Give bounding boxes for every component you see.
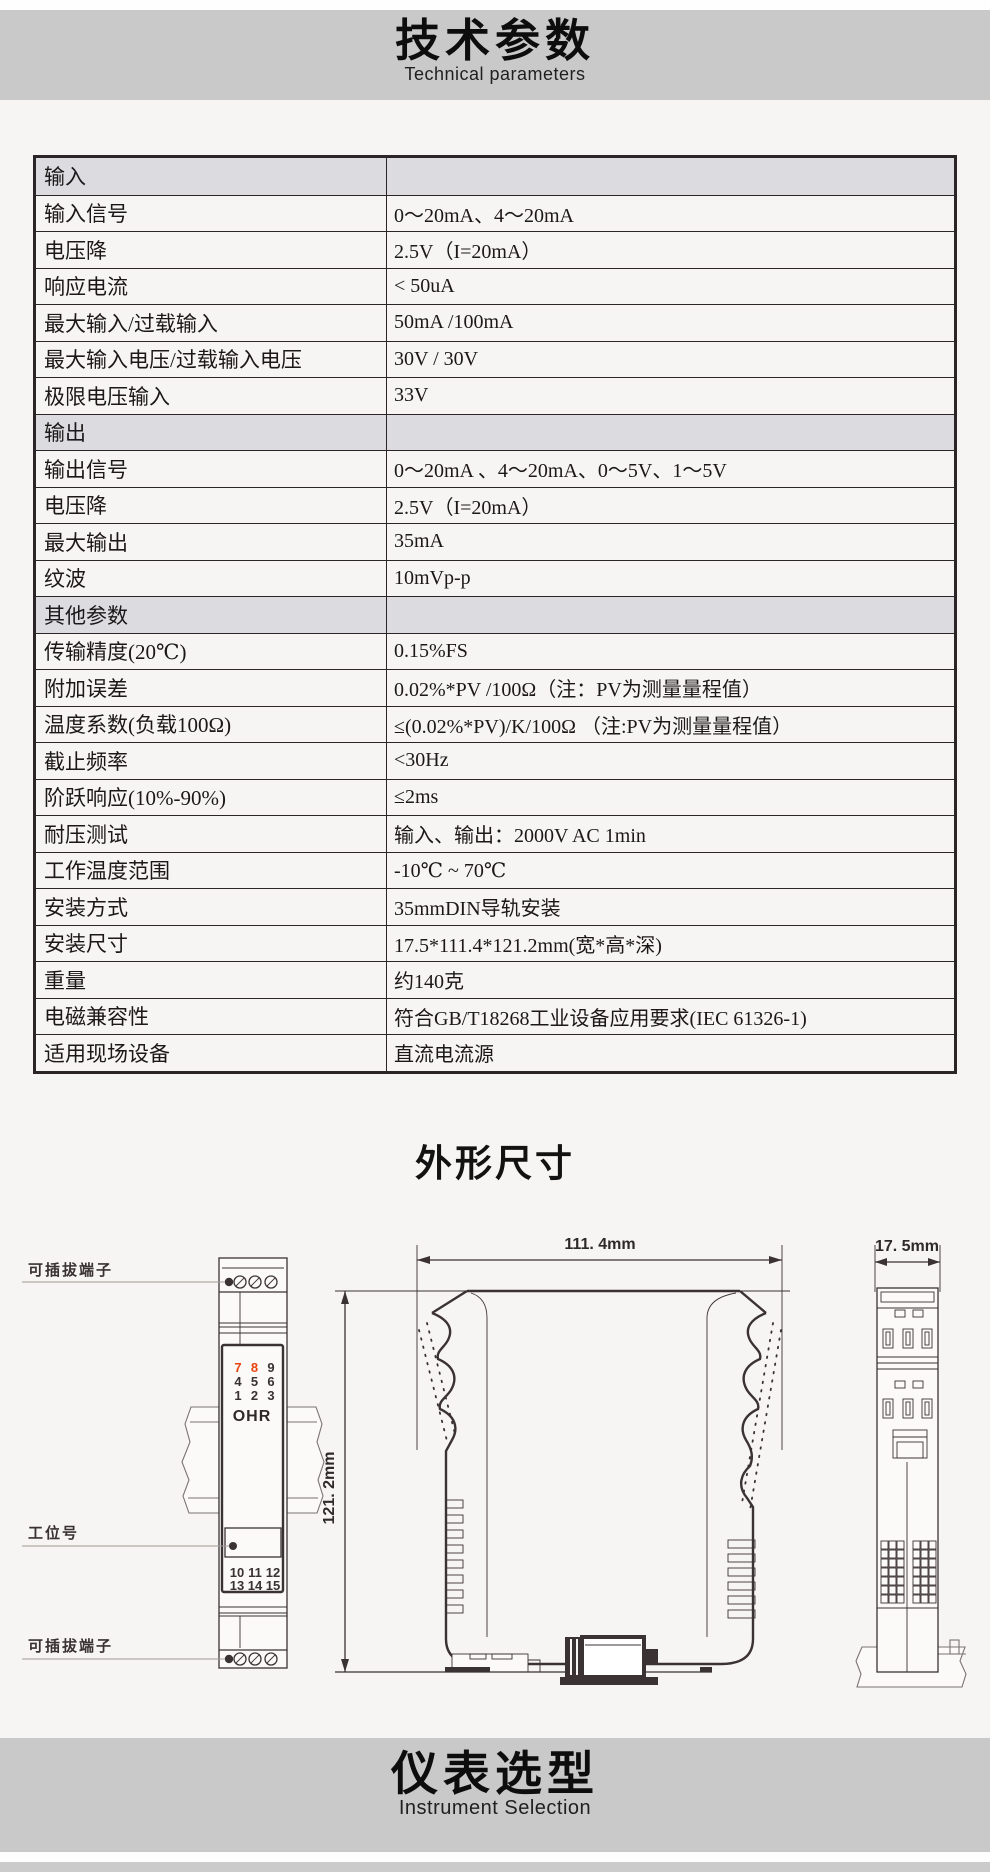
- spec-label: 其他参数: [36, 597, 387, 633]
- brand-logo: OHR: [233, 1408, 272, 1425]
- leader-dot-top: [225, 1277, 233, 1285]
- spec-value: [387, 597, 954, 633]
- spec-label: 传输精度(20℃): [36, 634, 387, 670]
- spec-value: 2.5V（I=20mA）: [387, 488, 954, 524]
- label-pluggable-terminal-bottom: 可插拔端子: [28, 1637, 113, 1655]
- table-row: 纹波 10mVp-p: [36, 560, 954, 597]
- selection-subtitle: Instrument Selection: [0, 1797, 990, 1820]
- table-row: 工作温度范围 -10℃ ~ 70℃: [36, 852, 954, 889]
- vent-slot: [446, 1605, 463, 1613]
- table-row: 传输精度(20℃) 0.15%FS: [36, 633, 954, 670]
- table-row: 最大输出 35mA: [36, 523, 954, 560]
- table-row: 重量 约140克: [36, 961, 954, 998]
- vent-slot: [728, 1596, 755, 1604]
- vent-slot: [728, 1582, 755, 1590]
- terminal-number: 2: [251, 1388, 258, 1403]
- spec-label: 附加误差: [36, 670, 387, 706]
- spec-value: 0～20mA 、4～20mA、0～5V、1～5V: [387, 451, 954, 487]
- label-station-number: 工位号: [28, 1524, 79, 1542]
- spec-value: < 50uA: [387, 269, 954, 305]
- table-row: 极限电压输入 33V: [36, 377, 954, 414]
- vent-slot: [728, 1568, 755, 1576]
- spec-label: 安装方式: [36, 889, 387, 925]
- table-row: 输出信号 0～20mA 、4～20mA、0～5V、1～5V: [36, 450, 954, 487]
- narrow-body: [877, 1288, 938, 1672]
- table-row: 响应电流 < 50uA: [36, 268, 954, 305]
- spec-label: 电压降: [36, 232, 387, 268]
- table-row: 输入: [36, 158, 954, 195]
- din-latch: [560, 1637, 658, 1685]
- spec-value: 17.5*111.4*121.2mm(宽*高*深): [387, 926, 954, 962]
- spec-label: 电压降: [36, 488, 387, 524]
- spec-label: 输出信号: [36, 451, 387, 487]
- spec-value: 50mA /100mA: [387, 305, 954, 341]
- table-row: 输出: [36, 414, 954, 451]
- outline-drawings: 789456123 OHR 101112131415 可插拔端子 工位号 可插拔…: [0, 1230, 990, 1735]
- spec-value: 约140克: [387, 962, 954, 998]
- spec-value: 30V / 30V: [387, 342, 954, 378]
- table-row: 适用现场设备 直流电流源: [36, 1034, 954, 1071]
- dim-width-label: 111. 4mm: [564, 1236, 635, 1253]
- table-row: 输入信号 0～20mA、4～20mA: [36, 195, 954, 232]
- table-row: 电压降 2.5V（I=20mA）: [36, 231, 954, 268]
- vent-slot: [446, 1530, 463, 1538]
- spec-value: [387, 415, 954, 451]
- terminal-number: 3: [267, 1388, 274, 1403]
- vent-slot: [446, 1575, 463, 1583]
- spec-label: 极限电压输入: [36, 378, 387, 414]
- spec-label: 纹波: [36, 561, 387, 597]
- spec-label: 最大输出: [36, 524, 387, 560]
- terminal-number: 9: [267, 1360, 274, 1375]
- spec-label: 温度系数(负载100Ω): [36, 707, 387, 743]
- terminal-number: 8: [251, 1360, 258, 1375]
- side-view: 111. 4mm 121. 2mm: [321, 1236, 790, 1685]
- terminal-number: 13: [230, 1578, 244, 1593]
- spec-label: 电磁兼容性: [36, 999, 387, 1035]
- selection-title: 仪表选型: [0, 1748, 990, 1800]
- table-row: 截止频率 <30Hz: [36, 742, 954, 779]
- spec-value: 2.5V（I=20mA）: [387, 232, 954, 268]
- table-row: 电压降 2.5V（I=20mA）: [36, 487, 954, 524]
- spec-table: 输入 输入信号 0～20mA、4～20mA 电压降 2.5V（I=20mA） 响…: [33, 155, 957, 1074]
- spec-value: -10℃ ~ 70℃: [387, 853, 954, 889]
- spec-label: 输入信号: [36, 196, 387, 232]
- spec-value: 35mA: [387, 524, 954, 560]
- spec-value: 33V: [387, 378, 954, 414]
- spec-label: 最大输入/过载输入: [36, 305, 387, 341]
- terminal-number: 4: [234, 1374, 242, 1389]
- dimensions-title: 外形尺寸: [0, 1140, 990, 1188]
- outline-drawings-svg: 789456123 OHR 101112131415 可插拔端子 工位号 可插拔…: [0, 1230, 990, 1735]
- side-vents: [446, 1500, 755, 1618]
- table-row: 阶跃响应(10%-90%) ≤2ms: [36, 779, 954, 816]
- table-row: 安装尺寸 17.5*111.4*121.2mm(宽*高*深): [36, 925, 954, 962]
- spec-label: 响应电流: [36, 269, 387, 305]
- leader-dot-bottom: [225, 1654, 233, 1662]
- spec-value: ≤2ms: [387, 780, 954, 816]
- spec-label: 最大输入电压/过载输入电压: [36, 342, 387, 378]
- spec-value: 10mVp-p: [387, 561, 954, 597]
- terminal-number: 5: [251, 1374, 258, 1389]
- vent-slot: [446, 1515, 463, 1523]
- vent-slot: [728, 1610, 755, 1618]
- dim-height-label: 121. 2mm: [321, 1451, 338, 1524]
- table-row: 温度系数(负载100Ω) ≤(0.02%*PV)/K/100Ω （注:PV为测量…: [36, 706, 954, 743]
- top-margin-strip: [0, 0, 990, 10]
- terminal-number: 14: [248, 1578, 263, 1593]
- page-header: 技术参数 Technical parameters: [0, 10, 990, 100]
- dim-depth-label: 17. 5mm: [875, 1238, 939, 1255]
- table-row: 其他参数: [36, 596, 954, 633]
- table-row: 最大输入/过载输入 50mA /100mA: [36, 304, 954, 341]
- label-pluggable-terminal-top: 可插拔端子: [28, 1261, 113, 1279]
- spec-label: 输出: [36, 415, 387, 451]
- vent-slot: [446, 1590, 463, 1598]
- spec-label: 耐压测试: [36, 816, 387, 852]
- spec-label: 安装尺寸: [36, 926, 387, 962]
- spec-label: 截止频率: [36, 743, 387, 779]
- spec-label: 工作温度范围: [36, 853, 387, 889]
- vent-slot: [446, 1500, 463, 1508]
- terminal-number: 1: [234, 1388, 241, 1403]
- table-row: 安装方式 35mmDIN导轨安装: [36, 888, 954, 925]
- spec-label: 输入: [36, 158, 387, 195]
- spec-label: 重量: [36, 962, 387, 998]
- spec-value: 0.15%FS: [387, 634, 954, 670]
- table-row: 最大输入电压/过载输入电压 30V / 30V: [36, 341, 954, 378]
- terminal-grid-top: 789456123: [234, 1360, 274, 1403]
- spec-value: ≤(0.02%*PV)/K/100Ω （注:PV为测量量程值）: [387, 707, 954, 743]
- spec-value: [387, 158, 954, 195]
- vent-slot: [446, 1560, 463, 1568]
- terminal-number: 7: [234, 1360, 241, 1375]
- vent-slot: [728, 1554, 755, 1562]
- spec-label: 阶跃响应(10%-90%): [36, 780, 387, 816]
- spec-value: <30Hz: [387, 743, 954, 779]
- spec-label: 适用现场设备: [36, 1035, 387, 1071]
- terminal-number: 15: [266, 1578, 280, 1593]
- spec-value: 输入、输出：2000V AC 1min: [387, 816, 954, 852]
- spec-value: 35mmDIN导轨安装: [387, 889, 954, 925]
- selection-header: 仪表选型 Instrument Selection: [0, 1738, 990, 1852]
- spec-value: 0～20mA、4～20mA: [387, 196, 954, 232]
- table-row: 耐压测试 输入、输出：2000V AC 1min: [36, 815, 954, 852]
- terminal-grid-bottom: 101112131415: [230, 1565, 280, 1593]
- vent-slot: [728, 1540, 755, 1548]
- spec-value: 直流电流源: [387, 1035, 954, 1071]
- next-section-strip: [0, 1862, 990, 1872]
- spec-value: 0.02%*PV /100Ω（注：PV为测量量程值）: [387, 670, 954, 706]
- page-title: 技术参数: [0, 16, 990, 66]
- spec-value: 符合GB/T18268工业设备应用要求(IEC 61326-1): [387, 999, 954, 1035]
- table-row: 电磁兼容性 符合GB/T18268工业设备应用要求(IEC 61326-1): [36, 998, 954, 1035]
- page-subtitle: Technical parameters: [0, 64, 990, 85]
- bottom-gap: [0, 1852, 990, 1862]
- terminal-number: 6: [267, 1374, 274, 1389]
- narrow-view: 17. 5mm: [856, 1238, 966, 1687]
- table-row: 附加误差 0.02%*PV /100Ω（注：PV为测量量程值）: [36, 669, 954, 706]
- front-view: 789456123 OHR 101112131415 可插拔端子 工位号 可插拔…: [22, 1258, 324, 1668]
- leader-dot-middle: [229, 1542, 237, 1550]
- vent-slot: [446, 1545, 463, 1553]
